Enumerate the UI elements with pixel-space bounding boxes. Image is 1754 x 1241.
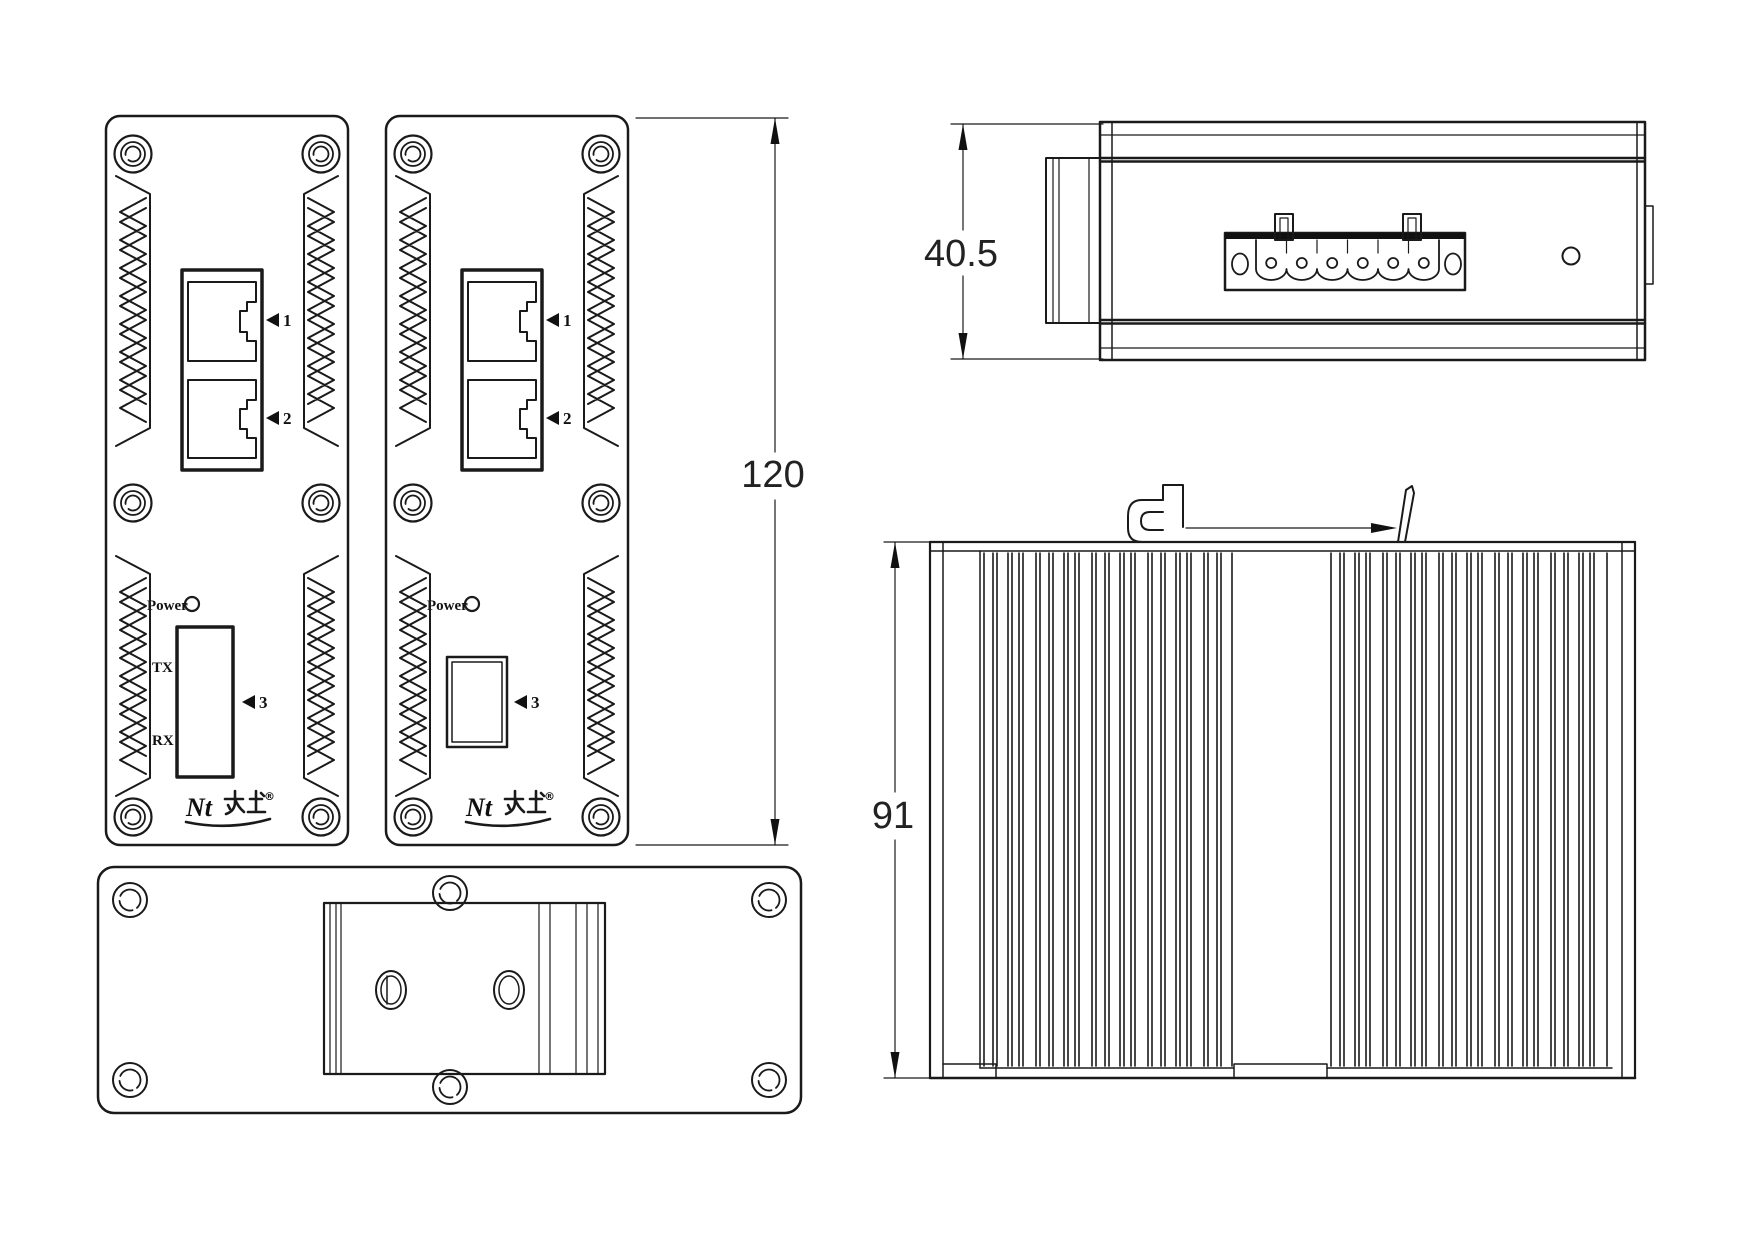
dimension-value: 40.5: [924, 233, 998, 275]
port3-number: 3: [531, 693, 540, 712]
drawing-canvas: 1 2 Power TX RX 3 Nt ® 1 2 Power 3 Nt: [0, 0, 1754, 1241]
rx-label: RX: [152, 733, 174, 749]
dimension-value: 91: [872, 795, 914, 837]
registered-mark: ®: [264, 790, 275, 803]
brand-logo-latin: Nt: [185, 793, 213, 822]
port3-number: 3: [259, 693, 268, 712]
port1-number: 1: [283, 311, 292, 330]
port2-number: 2: [563, 409, 572, 428]
port2-number: 2: [283, 409, 292, 428]
technical-drawing-page: 1 2 Power TX RX 3 Nt ® 1 2 Power 3 Nt: [0, 0, 1754, 1241]
dimension-value: 120: [741, 454, 804, 496]
registered-mark: ®: [544, 790, 555, 803]
background: [0, 0, 1754, 1241]
tx-label: TX: [152, 660, 173, 676]
brand-logo-latin: Nt: [465, 793, 493, 822]
power-label: Power: [147, 598, 188, 614]
port1-number: 1: [563, 311, 572, 330]
terminal-block-top-band: [1225, 233, 1465, 239]
power-label: Power: [427, 598, 468, 614]
